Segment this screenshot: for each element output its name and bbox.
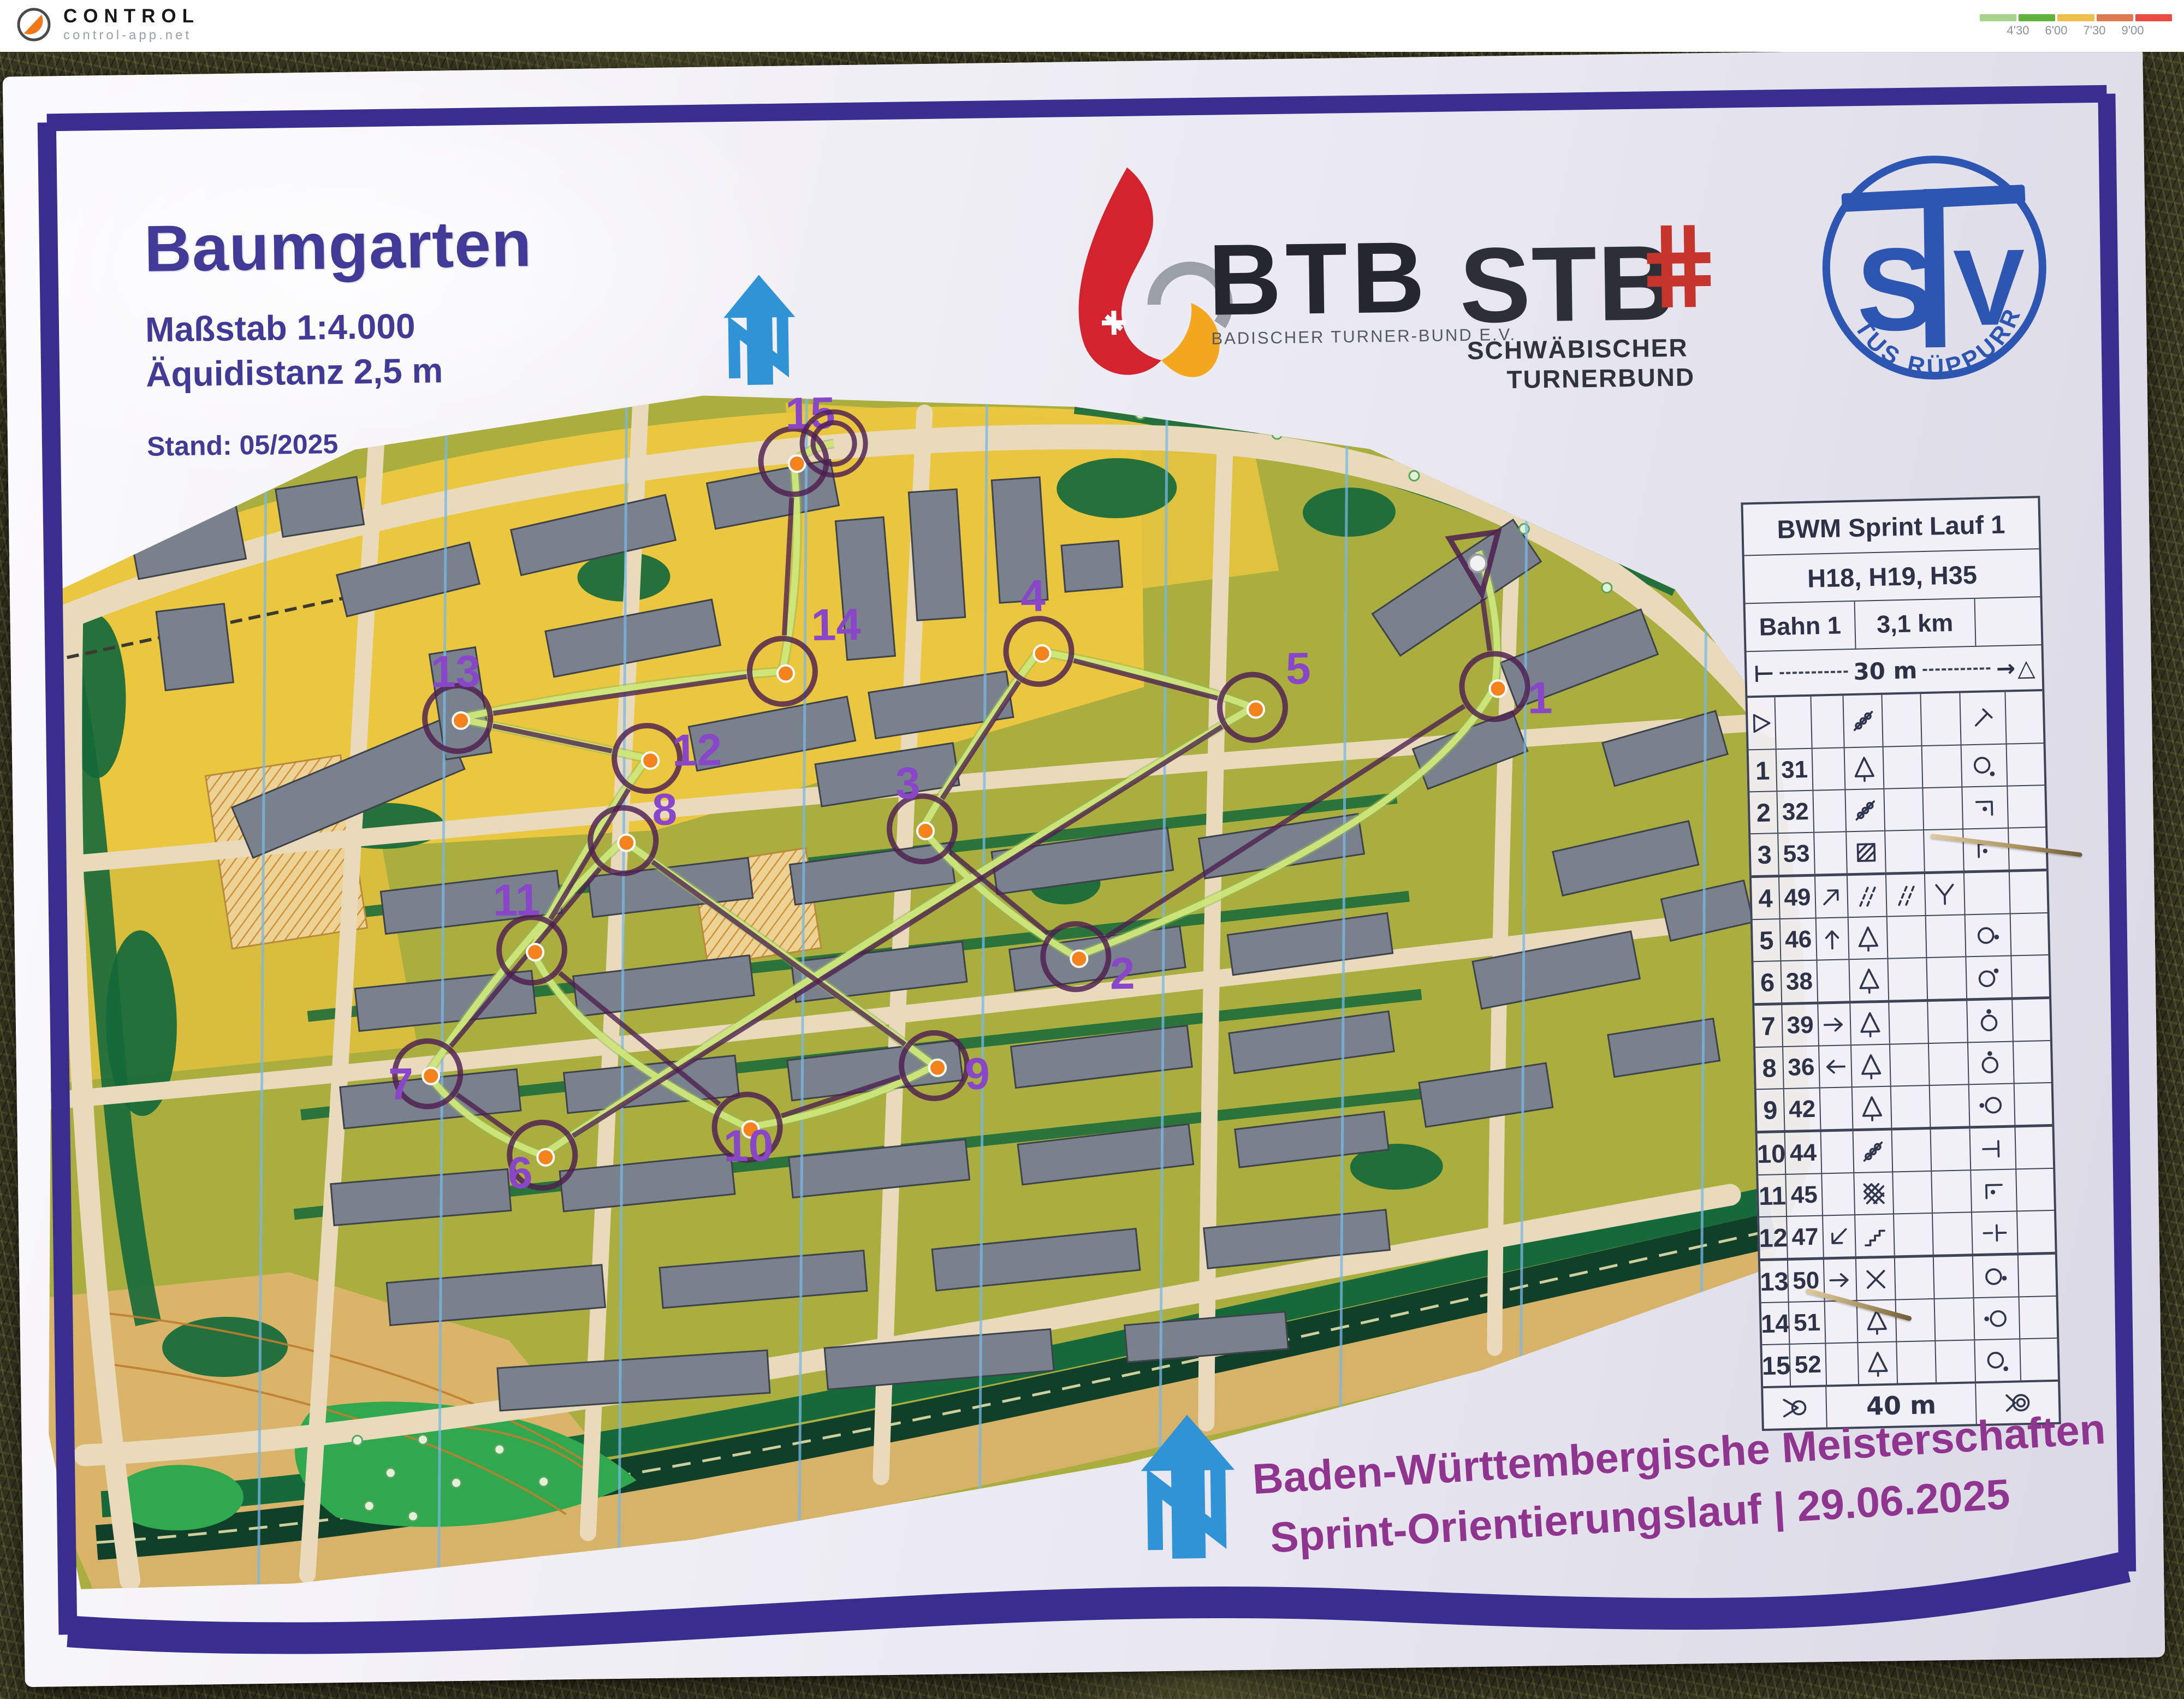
- card-cell: [1810, 696, 1843, 747]
- card-control-row: 1145: [1758, 1168, 2054, 1216]
- control-number: 4: [1020, 571, 1046, 621]
- circle-dot-tr-icon: [1974, 963, 2003, 991]
- conifer-icon: [1857, 1093, 1886, 1122]
- card-cell: [1969, 1127, 2015, 1169]
- gps-punch-marker: [1034, 645, 1050, 662]
- gps-punch-marker: [1248, 701, 1264, 717]
- card-cell: [1968, 1084, 2014, 1126]
- pace-segment: [2135, 14, 2172, 21]
- card-cell: [2014, 1127, 2053, 1169]
- corner-ne-dot-icon: [1971, 793, 1999, 822]
- card-cell: [1853, 1173, 1893, 1215]
- card-cell: [1821, 1173, 1854, 1215]
- card-cell: [1882, 694, 1921, 746]
- conifer-icon: [1854, 923, 1883, 952]
- card-cell: [1961, 787, 2008, 829]
- finish-funnel-icon: [1780, 1393, 1809, 1422]
- gps-punch-marker: [778, 665, 794, 681]
- card-cell: [1963, 872, 2010, 914]
- card-cell: 14: [1761, 1303, 1789, 1344]
- start-distance: 30 m: [1853, 657, 1918, 685]
- pace-segment: [2057, 14, 2094, 21]
- map-photo[interactable]: 123456789101112131415 BTB: [0, 52, 2184, 1699]
- card-cell: [1888, 958, 1927, 1000]
- control-number: 9: [965, 1049, 990, 1099]
- card-cell: [1934, 1298, 1974, 1340]
- app-bar: CONTROL control-app.net 4'306'007'309'00: [0, 0, 2184, 52]
- card-cell: [1920, 693, 1960, 746]
- card-cell: [2017, 1255, 2056, 1297]
- card-cell: 5: [1753, 919, 1781, 961]
- card-cell: [1812, 790, 1845, 831]
- card-cell: [1825, 1343, 1858, 1385]
- card-cell: [1818, 1045, 1851, 1087]
- t-diag-icon: [1968, 704, 1997, 733]
- slash-dashed-icon: [1891, 881, 1920, 910]
- card-cell: [1819, 1088, 1852, 1129]
- card-cell: 2: [1749, 792, 1777, 833]
- arrow-right-icon: [1820, 1010, 1849, 1039]
- map-title: Baumgarten: [144, 206, 532, 287]
- card-cell: [2019, 1339, 2058, 1381]
- card-control-row: 1044: [1757, 1124, 2053, 1174]
- card-cell: [1889, 1002, 1928, 1044]
- card-cell: [1896, 1341, 1936, 1383]
- card-cell: [1929, 1085, 1969, 1127]
- card-cell: [2013, 1083, 2052, 1125]
- card-cell: [1928, 1043, 1968, 1085]
- card-cell: [1854, 1215, 1894, 1257]
- card-cell: [1849, 959, 1889, 1001]
- card-cell: 49: [1778, 877, 1815, 918]
- card-cell: [1973, 1297, 2019, 1339]
- slash-dashed-icon: [1853, 881, 1882, 910]
- card-cell: [1926, 957, 1966, 999]
- control-number: 3: [895, 758, 921, 809]
- circle-dot-r-icon: [1973, 920, 2002, 949]
- card-cell: [1921, 746, 1961, 788]
- svg-text:SCHWÄBISCHER: SCHWÄBISCHER: [1467, 333, 1688, 365]
- gps-punch-marker: [423, 1068, 439, 1084]
- t-right-icon: [1978, 1134, 2007, 1163]
- card-cell: [1843, 695, 1883, 747]
- card-cell: [1972, 1255, 2018, 1297]
- pace-segment: [2019, 14, 2055, 21]
- gps-punch-marker: [642, 752, 658, 769]
- card-cell: 53: [1778, 833, 1814, 875]
- card-cell: [1857, 1342, 1897, 1385]
- card-cell: [1885, 874, 1925, 916]
- map-equidistance: Äquidistanz 2,5 m: [146, 349, 534, 395]
- pace-segment: [1980, 14, 2016, 21]
- card-cell: [1775, 697, 1811, 748]
- card-cell: 31: [1776, 749, 1812, 791]
- card-cell: 11: [1758, 1175, 1786, 1216]
- card-cell: [1850, 1045, 1890, 1087]
- control-number: 6: [507, 1148, 533, 1198]
- app-logo[interactable]: CONTROL control-app.net: [16, 7, 200, 42]
- card-cell: [1960, 745, 2007, 787]
- card-cell: 32: [1777, 791, 1813, 833]
- card-cell: [2018, 1297, 2057, 1339]
- card-cell: [1965, 957, 2011, 999]
- card-control-row: 131: [1749, 742, 2045, 791]
- card-cell: [1971, 1211, 2017, 1254]
- stairs-icon: [1860, 1221, 1889, 1250]
- circle-dot-l-icon: [1982, 1304, 2011, 1333]
- pace-segment: [2097, 14, 2133, 21]
- card-cell: [1967, 1042, 2014, 1084]
- card-control-row: 638: [1753, 954, 2049, 1003]
- card-cell: [1891, 1130, 1931, 1172]
- brand-domain: control-app.net: [63, 29, 200, 42]
- card-course-row: Bahn 13,1 km: [1746, 596, 2041, 651]
- control-number: 11: [492, 875, 541, 925]
- card-title: BWM Sprint Lauf 1: [1743, 498, 2039, 555]
- card-cell: [1933, 1256, 1973, 1298]
- card-cell: [1935, 1340, 1975, 1382]
- hatch-square-icon: [1851, 837, 1880, 866]
- card-cell: 7: [1754, 1005, 1782, 1047]
- gps-punch-marker: [1489, 680, 1506, 697]
- pace-legend-labels: 4'306'007'309'00: [1980, 23, 2172, 40]
- card-cell: [1822, 1215, 1855, 1257]
- circle-dot-t-icon: [1975, 1006, 2004, 1035]
- card-cell: [1844, 789, 1884, 831]
- conifer-icon: [1854, 965, 1883, 994]
- card-cell: [1892, 1172, 1932, 1214]
- svg-text:STB: STB: [1459, 223, 1677, 346]
- map-scale: Maßstab 1:4.000: [145, 304, 533, 350]
- card-cell: 46: [1779, 919, 1816, 960]
- card-cell: [1845, 831, 1885, 874]
- card-cell: [1894, 1257, 1934, 1299]
- card-cell: [1853, 1131, 1892, 1173]
- control-number: 2: [1109, 949, 1135, 999]
- card-cell: [2015, 1169, 2054, 1211]
- fence-icon: [1850, 795, 1879, 824]
- pace-label: 6'00: [2034, 23, 2078, 38]
- card-control-row: 449: [1752, 869, 2048, 919]
- pace-label: 7'30: [2073, 23, 2116, 38]
- card-cell: [1893, 1214, 1933, 1256]
- card-control-row: 942: [1756, 1082, 2052, 1131]
- card-cell: [1748, 697, 1776, 749]
- card-cell: [1922, 788, 1962, 830]
- gps-punch-marker: [453, 712, 469, 729]
- conifer-icon: [1855, 1009, 1884, 1038]
- svg-text:BTB: BTB: [1208, 221, 1430, 337]
- control-number: 5: [1285, 644, 1311, 694]
- card-cell: 15: [1762, 1345, 1790, 1386]
- circle-dot-lr-icon: [1969, 751, 1998, 780]
- card-cell: 51: [1788, 1302, 1825, 1343]
- card-cell: [1884, 788, 1924, 830]
- card-start-distance-row: ⊢30 m→△: [1747, 644, 2043, 696]
- card-cell: 52: [1789, 1344, 1826, 1385]
- control-flag-icon: [16, 7, 51, 42]
- card-cell: [1889, 1044, 1929, 1086]
- gps-punch-marker: [527, 944, 543, 960]
- gps-punch-marker: [537, 1149, 554, 1166]
- card-cell: [2007, 786, 2045, 828]
- card-control-row: 232: [1749, 785, 2045, 833]
- card-cell: [1930, 1128, 1970, 1171]
- card-cell: [1959, 692, 2005, 745]
- tus-logo: S V TUS RÜPPURR: [1825, 158, 2044, 382]
- card-cell: 39: [1782, 1005, 1818, 1046]
- map-sheet: 123456789101112131415 BTB: [3, 47, 2165, 1687]
- card-cell: 42: [1783, 1089, 1820, 1130]
- card-cell: [1932, 1213, 1972, 1255]
- corner-nw-dot-icon: [1979, 1176, 2008, 1205]
- card-cell: [2016, 1211, 2055, 1253]
- conifer-icon: [1856, 1051, 1885, 1080]
- arrow-left-icon: [1821, 1052, 1850, 1081]
- arrow-sw-icon: [1825, 1222, 1854, 1251]
- pace-label: 9'00: [2111, 23, 2155, 38]
- conifer-icon: [1850, 753, 1879, 782]
- stb-logo: STB SCHWÄBISCHER TURNERBUND: [1459, 223, 1712, 394]
- card-cell: [1844, 747, 1884, 789]
- control-number: 7: [388, 1059, 414, 1109]
- card-cell: [1816, 960, 1849, 1001]
- card-cell: [1815, 918, 1848, 959]
- card-control-row: 1552: [1762, 1338, 2058, 1386]
- card-cell: [2011, 999, 2050, 1041]
- card-cell: [1824, 1301, 1857, 1342]
- card-cell: [2013, 1041, 2051, 1083]
- svg-text:TURNERBUND: TURNERBUND: [1506, 363, 1695, 394]
- thicket-icon: [1859, 1179, 1888, 1208]
- card-cell: [1966, 1000, 2013, 1042]
- card-cell: [1813, 832, 1847, 874]
- card-cell: 47: [1787, 1216, 1823, 1258]
- card-cell: [1883, 746, 1922, 788]
- card-cell: 44: [1784, 1132, 1821, 1174]
- control-number: 13: [430, 646, 480, 697]
- card-course-name: Bahn 1: [1746, 602, 1855, 651]
- card-cell: 6: [1753, 961, 1781, 1003]
- crossing-x-icon: [1861, 1264, 1890, 1293]
- map-edition: Stand: 05/2025: [147, 425, 535, 462]
- card-course-length: 3,1 km: [1854, 599, 1975, 649]
- card-cell: 3: [1750, 834, 1778, 875]
- control-number: 10: [723, 1121, 773, 1171]
- card-cell: [1849, 1003, 1889, 1045]
- card-cell: [1817, 1003, 1850, 1045]
- card-control-row: 1350: [1760, 1252, 2056, 1302]
- card-cell: [1927, 1001, 1967, 1043]
- card-cell: [1895, 1299, 1935, 1341]
- control-number: 14: [811, 600, 862, 650]
- btb-logo: BTB BADISCHER TURNER-BUND E.V.: [1077, 162, 1517, 379]
- card-cell: [1974, 1339, 2020, 1381]
- card-cell: [1925, 915, 1965, 957]
- card-cell: [2010, 955, 2049, 997]
- card-cell: [2009, 871, 2048, 913]
- start-tri-icon: [1748, 709, 1776, 738]
- card-control-row: 836: [1755, 1040, 2051, 1089]
- card-cell: [1886, 916, 1926, 958]
- card-cell: 4: [1752, 877, 1779, 919]
- card-cell: [1924, 873, 1964, 915]
- card-cell: [1890, 1086, 1930, 1128]
- card-control-row: 353: [1750, 827, 2046, 875]
- gps-punch-marker: [929, 1060, 946, 1076]
- card-cell: 45: [1785, 1174, 1822, 1216]
- card-cell: [1814, 876, 1848, 917]
- fence-icon: [1858, 1137, 1887, 1166]
- card-cell: [1970, 1169, 2016, 1211]
- card-cell: [1848, 917, 1888, 959]
- circle-dot-lr-icon: [1983, 1346, 2012, 1375]
- card-control-row: 1247: [1759, 1210, 2055, 1258]
- gps-start-marker: [1469, 555, 1486, 572]
- card-cell: [1855, 1258, 1895, 1300]
- circle-dot-r-icon: [1981, 1262, 2010, 1291]
- t-pair-icon: [1980, 1218, 2009, 1247]
- card-cell: [1811, 748, 1844, 789]
- card-cell: [1847, 875, 1886, 917]
- card-cell: 10: [1758, 1133, 1785, 1174]
- arrow-up-icon: [1818, 924, 1847, 953]
- pace-label: 4'30: [1996, 23, 2040, 38]
- arrow-ne-icon: [1817, 882, 1846, 911]
- card-cell: 12: [1759, 1217, 1787, 1258]
- card-cell: 9: [1756, 1089, 1784, 1131]
- pace-legend: 4'306'007'309'00: [1980, 14, 2172, 40]
- control-number: 1: [1527, 673, 1553, 723]
- card-cell: [1962, 829, 2009, 871]
- card-cell: 8: [1755, 1047, 1783, 1089]
- card-cell: 38: [1781, 961, 1817, 1002]
- north-arrow-top: [723, 275, 796, 385]
- card-cell: [1884, 830, 1924, 872]
- card-cell: [1820, 1131, 1853, 1173]
- card-course-climb: [1974, 597, 2041, 646]
- card-classes: H18, H19, H35: [1744, 548, 2040, 603]
- card-cell: 1: [1749, 750, 1777, 791]
- card-control-row: 739: [1754, 996, 2050, 1047]
- card-cell: [1931, 1171, 1971, 1213]
- control-number: 12: [672, 725, 722, 775]
- pace-legend-bar: [1980, 14, 2172, 21]
- card-cell: [2005, 744, 2044, 786]
- card-cell: 13: [1760, 1261, 1788, 1302]
- card-start-row: [1747, 689, 2043, 749]
- brand-name: CONTROL: [63, 7, 200, 26]
- arrow-right-icon: [1826, 1266, 1855, 1294]
- card-cell: [2009, 913, 2048, 955]
- gps-punch-marker: [917, 823, 934, 839]
- control-description-card: BWM Sprint Lauf 1H18, H19, H35Bahn 13,1 …: [1741, 496, 2061, 1431]
- card-control-row: 546: [1753, 912, 2049, 961]
- conifer-icon: [1863, 1348, 1892, 1377]
- fence-icon: [1849, 706, 1878, 735]
- junction-y-icon: [1930, 880, 1959, 908]
- card-cell: [2004, 691, 2043, 744]
- card-cell: [1851, 1087, 1891, 1129]
- gps-punch-marker: [1071, 951, 1087, 967]
- card-cell: [1964, 914, 2010, 957]
- card-cell: 36: [1782, 1047, 1819, 1088]
- gps-punch-marker: [618, 834, 634, 851]
- circle-dot-t-icon: [1976, 1048, 2005, 1077]
- gps-punch-marker: [788, 455, 805, 472]
- circle-dot-l-icon: [1977, 1090, 2006, 1119]
- map-title-block: Baumgarten Maßstab 1:4.000 Äquidistanz 2…: [144, 206, 535, 462]
